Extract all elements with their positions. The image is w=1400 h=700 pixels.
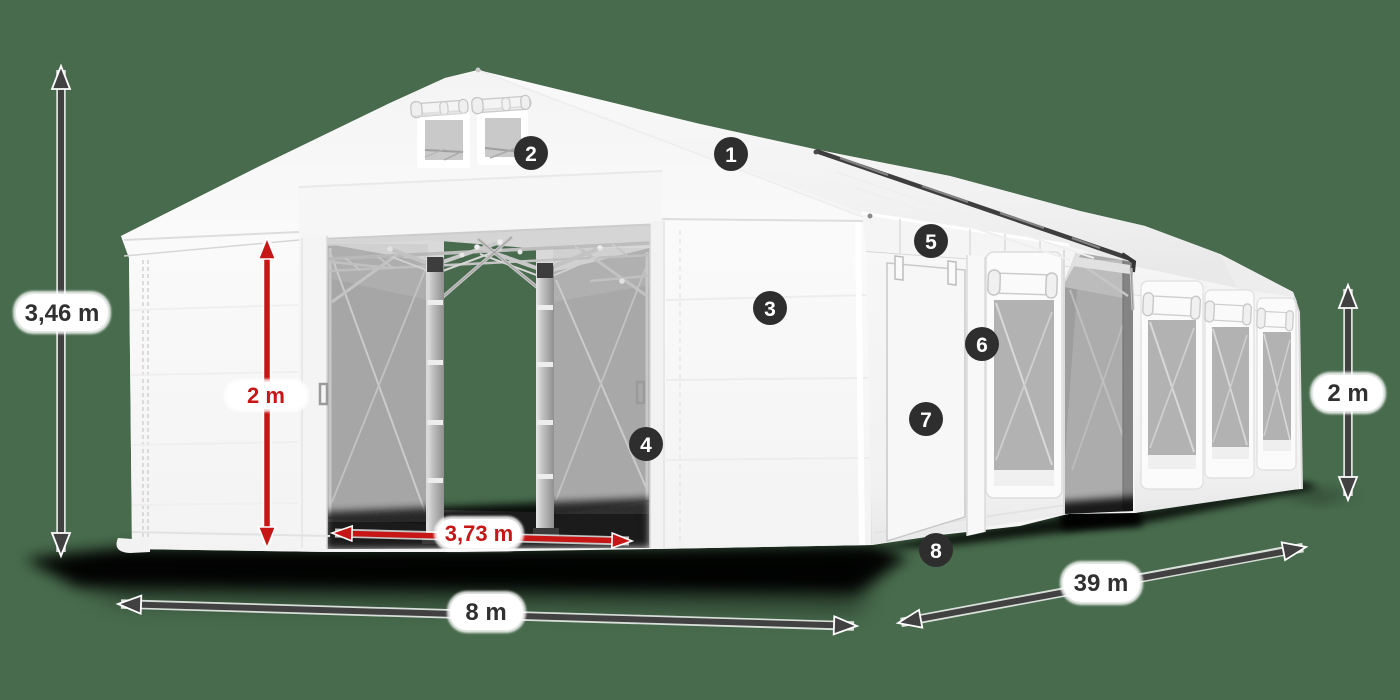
svg-text:39 m: 39 m <box>1074 570 1129 597</box>
svg-text:3,73 m: 3,73 m <box>445 521 514 546</box>
svg-text:3,46 m: 3,46 m <box>25 300 100 327</box>
svg-text:2: 2 <box>525 143 537 166</box>
svg-text:3: 3 <box>764 298 776 321</box>
svg-text:1: 1 <box>725 144 737 167</box>
svg-text:2 m: 2 m <box>247 383 285 408</box>
svg-text:8: 8 <box>930 540 942 563</box>
svg-text:2 m: 2 m <box>1327 380 1368 407</box>
svg-text:5: 5 <box>925 231 937 254</box>
svg-text:6: 6 <box>976 334 988 357</box>
svg-text:7: 7 <box>920 409 932 432</box>
svg-text:4: 4 <box>640 434 652 457</box>
svg-text:8 m: 8 m <box>465 599 506 626</box>
